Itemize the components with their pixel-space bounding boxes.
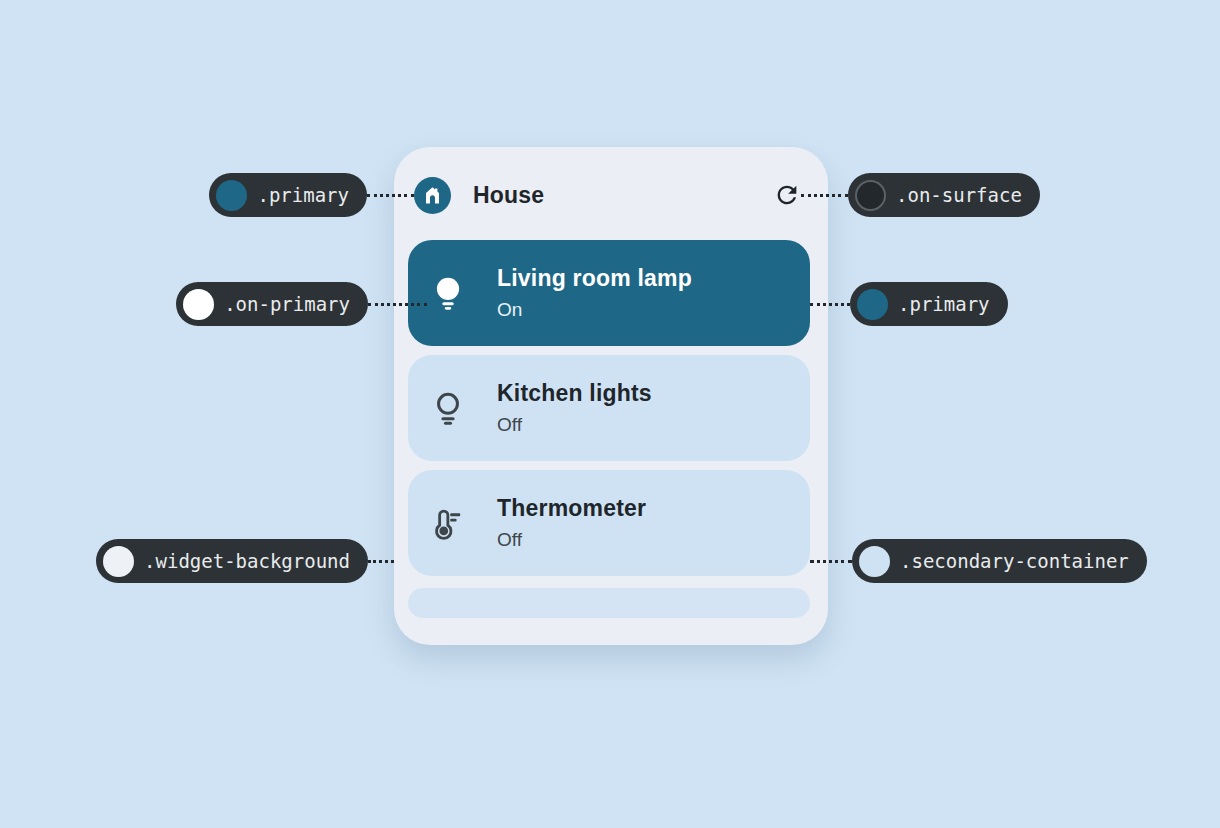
color-swatch-on-primary — [183, 289, 214, 320]
callout-label: .secondary-container — [900, 550, 1129, 572]
callout-on-primary: .on-primary — [176, 282, 368, 326]
color-swatch-primary — [857, 289, 888, 320]
connector-on-surface — [801, 194, 848, 197]
connector-widget-background — [368, 560, 394, 563]
device-card-living-room-lamp[interactable]: Living room lamp On — [408, 240, 810, 346]
callout-label: .on-surface — [896, 184, 1022, 206]
connector-on-primary — [368, 303, 427, 306]
house-icon — [422, 185, 443, 206]
house-icon-badge — [414, 177, 451, 214]
lightbulb-outline-icon — [430, 390, 466, 426]
color-swatch-widget-background — [103, 546, 134, 577]
device-card-kitchen-lights[interactable]: Kitchen lights Off — [408, 355, 810, 461]
thermometer-icon — [430, 505, 466, 541]
color-swatch-on-surface — [855, 180, 886, 211]
callout-label: .on-primary — [224, 293, 350, 315]
device-card-text: Thermometer Off — [497, 495, 646, 551]
refresh-icon — [773, 181, 801, 209]
callout-label: .widget-background — [144, 550, 350, 572]
callout-label: .primary — [898, 293, 990, 315]
color-swatch-primary — [216, 180, 247, 211]
device-status: Off — [497, 414, 652, 436]
callout-secondary-container: .secondary-container — [852, 539, 1147, 583]
connector-primary-right — [810, 303, 850, 306]
device-card-text: Living room lamp On — [497, 265, 692, 321]
device-card-thermometer[interactable]: Thermometer Off — [408, 470, 810, 576]
lightbulb-filled-icon — [430, 275, 466, 311]
widget-title: House — [473, 182, 544, 209]
color-swatch-secondary-container — [859, 546, 890, 577]
device-name: Living room lamp — [497, 265, 692, 292]
partial-next-card-pill — [408, 588, 810, 618]
callout-on-surface: .on-surface — [848, 173, 1040, 217]
device-name: Thermometer — [497, 495, 646, 522]
connector-secondary-container — [810, 560, 852, 563]
callout-primary-right: .primary — [850, 282, 1008, 326]
widget-header: House — [394, 175, 828, 215]
refresh-button[interactable] — [772, 180, 802, 210]
callout-label: .primary — [257, 184, 349, 206]
device-card-text: Kitchen lights Off — [497, 380, 652, 436]
device-status: Off — [497, 529, 646, 551]
callout-widget-background: .widget-background — [96, 539, 368, 583]
home-widget: House Living room lamp On — [394, 147, 828, 645]
device-status: On — [497, 299, 692, 321]
device-name: Kitchen lights — [497, 380, 652, 407]
callout-primary-left: .primary — [209, 173, 367, 217]
connector-primary-left — [367, 194, 414, 197]
